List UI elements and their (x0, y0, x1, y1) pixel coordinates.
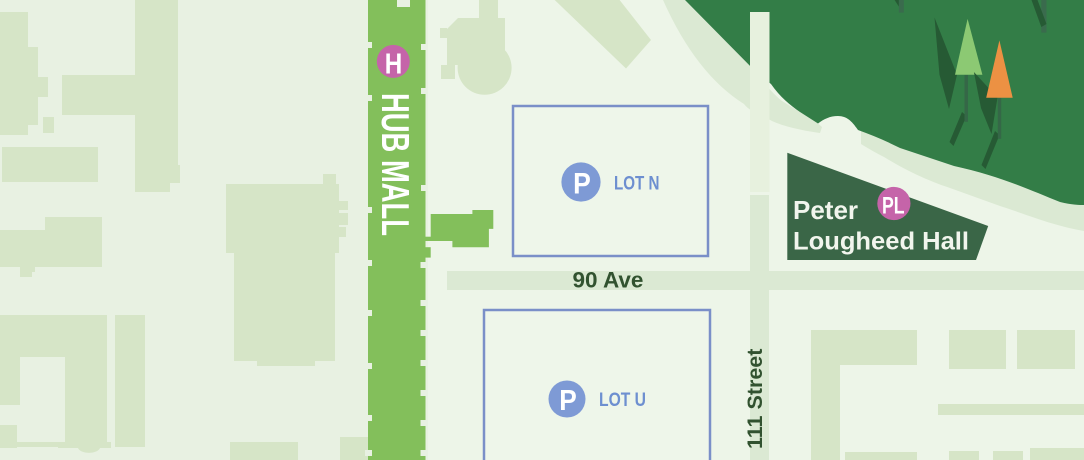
svg-text:111 Street: 111 Street (743, 349, 767, 449)
svg-text:H: H (385, 48, 403, 80)
svg-text:Lougheed Hall: Lougheed Hall (793, 228, 969, 256)
svg-text:LOT U: LOT U (599, 390, 646, 411)
svg-text:Peter: Peter (793, 195, 858, 225)
svg-text:P: P (559, 385, 577, 417)
svg-text:90 Ave: 90 Ave (573, 268, 644, 293)
svg-text:PL: PL (882, 192, 905, 219)
svg-text:P: P (573, 168, 591, 201)
svg-text:LOT N: LOT N (614, 173, 660, 194)
svg-text:HUB MALL: HUB MALL (373, 93, 416, 236)
